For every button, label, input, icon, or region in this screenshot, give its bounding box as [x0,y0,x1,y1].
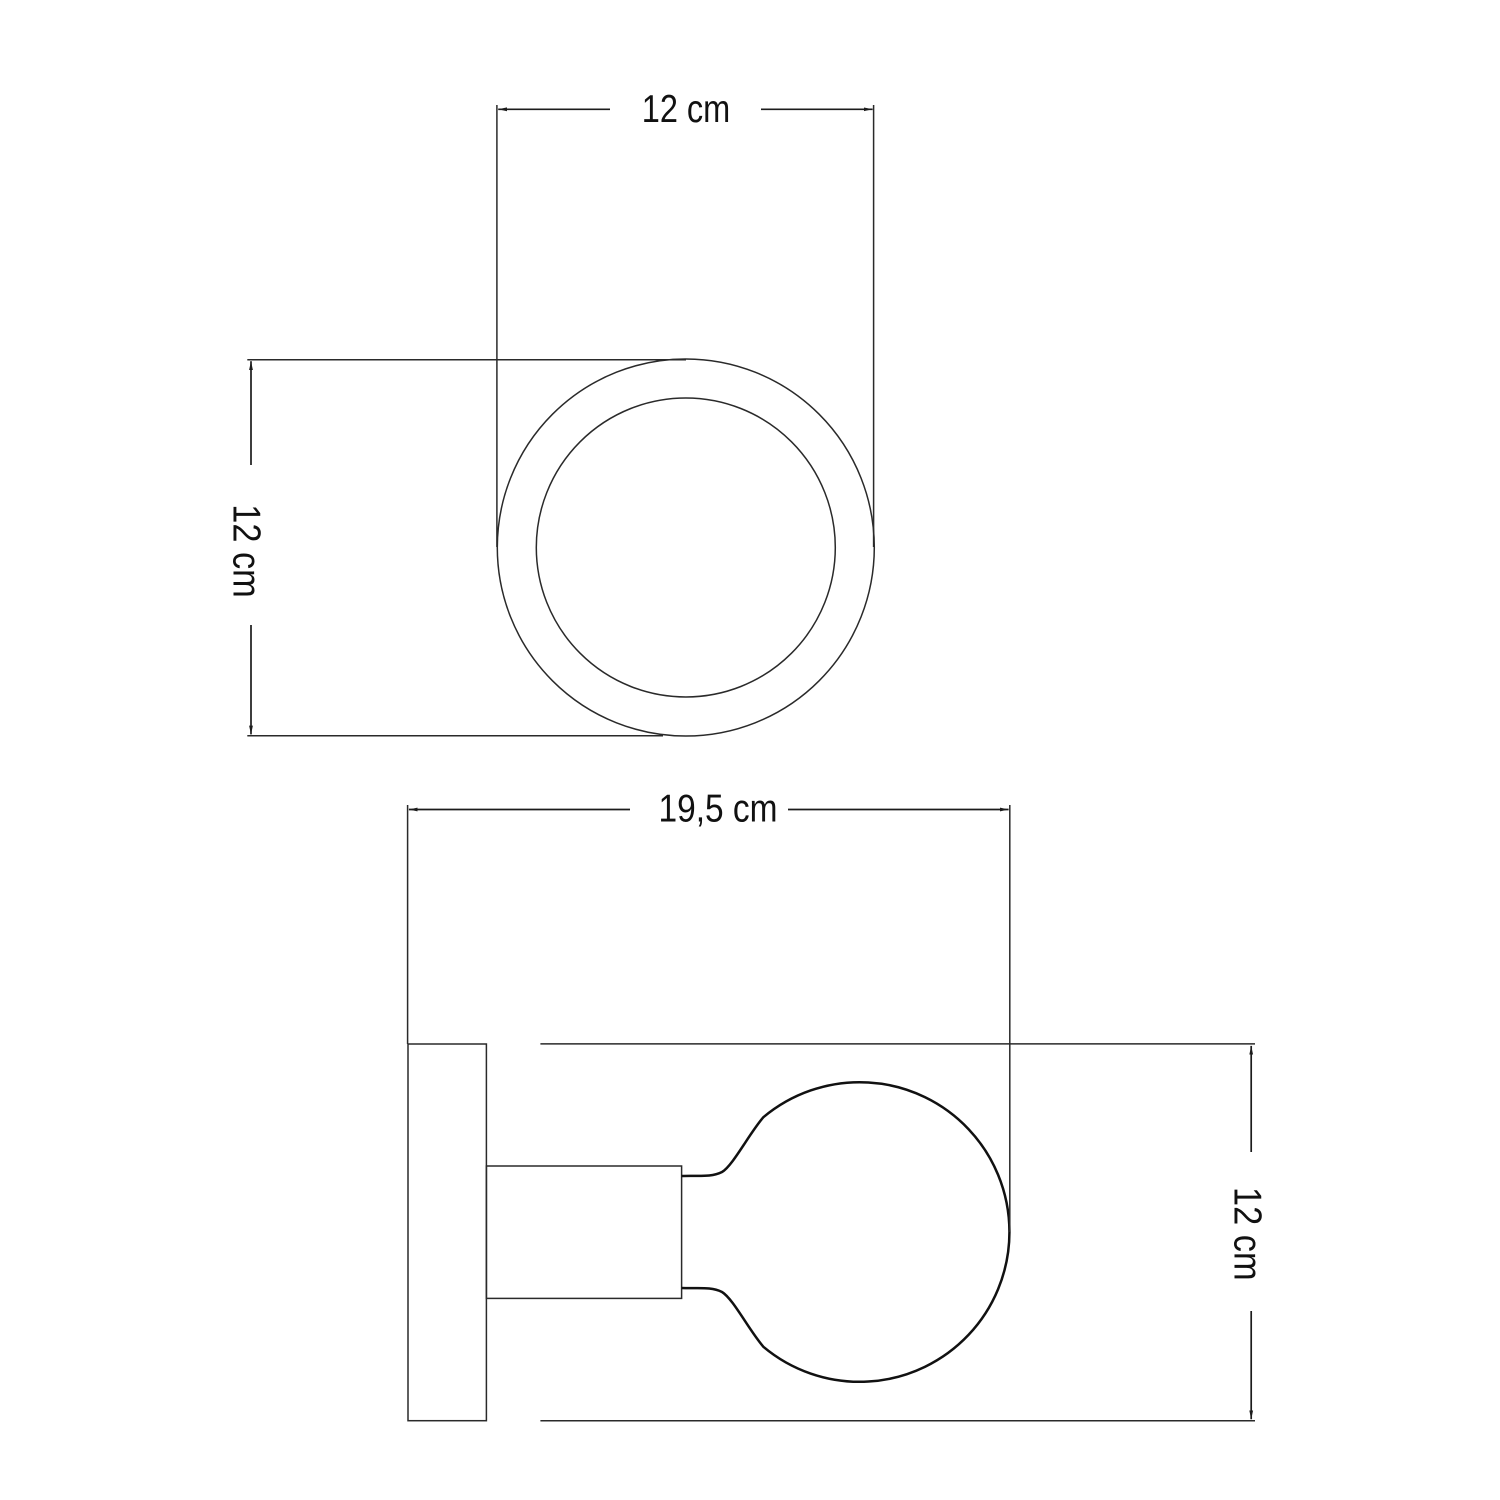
svg-text:12 cm: 12 cm [1226,1187,1269,1281]
svg-text:12 cm: 12 cm [225,504,268,598]
svg-text:12 cm: 12 cm [642,88,731,131]
svg-text:19,5 cm: 19,5 cm [659,788,778,831]
